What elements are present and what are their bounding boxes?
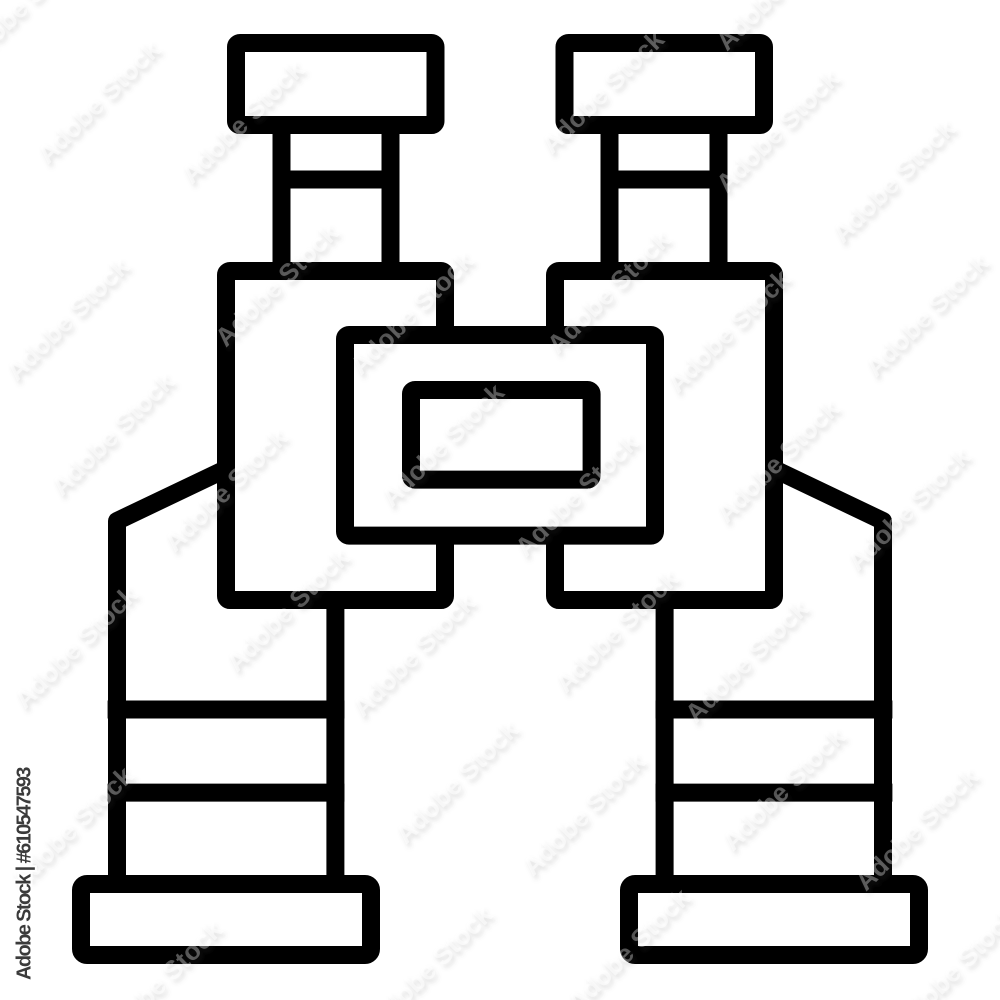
svg-text:Adobe Stock | #610547593: Adobe Stock | #610547593	[14, 767, 36, 980]
